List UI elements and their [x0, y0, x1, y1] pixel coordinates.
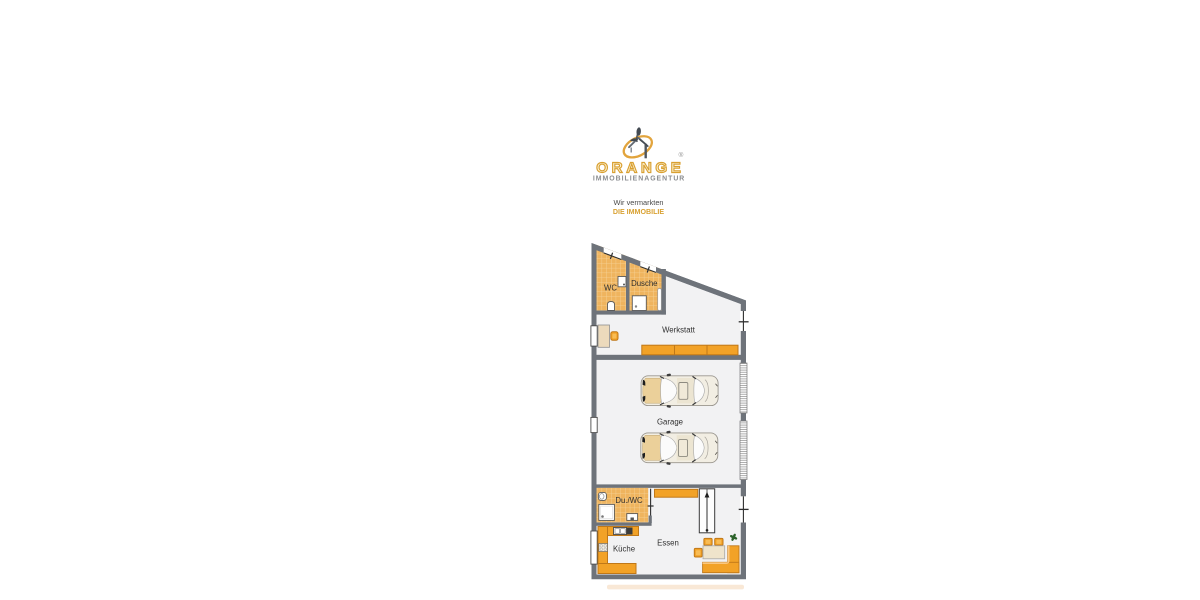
svg-text:IMMOBILIENAGENTUR: IMMOBILIENAGENTUR — [593, 176, 685, 183]
svg-text:Garage: Garage — [657, 417, 683, 426]
svg-text:®: ® — [679, 151, 684, 159]
svg-text:Dusche: Dusche — [631, 279, 657, 288]
svg-text:Essen: Essen — [657, 538, 679, 547]
svg-text:Wir vermarkten: Wir vermarkten — [613, 198, 663, 207]
svg-text:Werkstatt: Werkstatt — [662, 325, 696, 334]
svg-text:Du./WC: Du./WC — [615, 496, 643, 505]
svg-text:Küche: Küche — [613, 544, 635, 553]
svg-text:DIE IMMOBILIE: DIE IMMOBILIE — [613, 208, 665, 216]
svg-text:ORANGE: ORANGE — [596, 160, 684, 177]
svg-text:WC: WC — [604, 284, 617, 293]
